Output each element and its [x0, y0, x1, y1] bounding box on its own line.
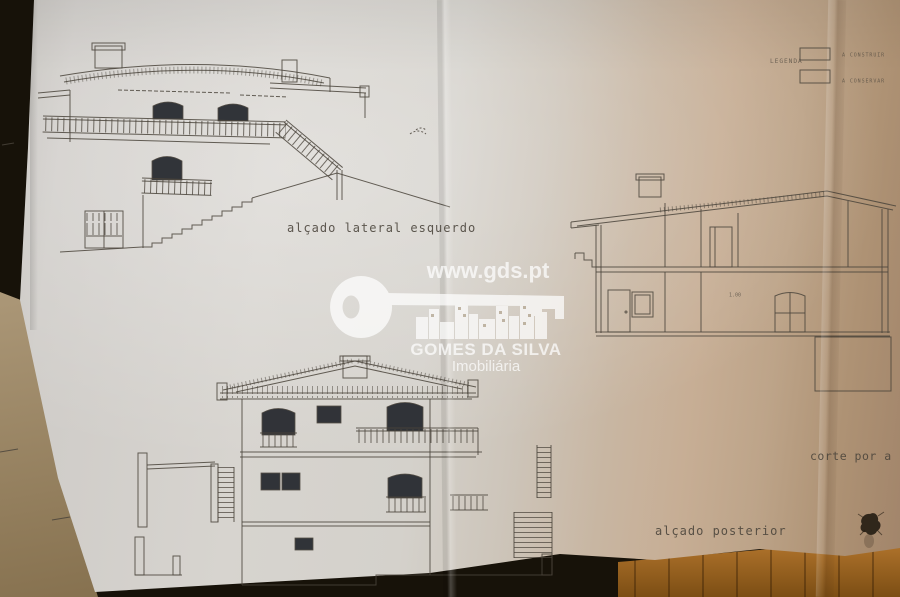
section-drawing	[565, 165, 900, 405]
legend-item-conservar: A CONSERVAR	[842, 78, 885, 84]
left-elevation-label: alçado lateral esquerdo	[287, 221, 476, 235]
watermark-tagline: Imobiliária	[452, 358, 521, 375]
edge-marks	[0, 0, 80, 540]
skyline-icon	[416, 301, 547, 339]
rear-elevation-label: alçado posterior	[655, 524, 787, 538]
watermark-logo: GDS www.gds.pt GOMES DA SILVA Imobiliári…	[328, 244, 578, 376]
legend-swatches	[796, 42, 844, 92]
photographed-blueprint: alçado lateral esquerdo corte por a b al…	[0, 0, 900, 597]
watermark-url: www.gds.pt	[426, 258, 550, 283]
section-dimension-label: 1.00	[729, 292, 741, 298]
legend-item-construir: A CONSTRUIR	[842, 52, 885, 58]
key-text: GDS	[366, 291, 380, 323]
ink-blot	[856, 506, 886, 550]
section-label: corte por a b	[810, 449, 900, 463]
rear-elevation-drawing	[120, 355, 570, 597]
watermark-company: GOMES DA SILVA	[410, 340, 561, 359]
